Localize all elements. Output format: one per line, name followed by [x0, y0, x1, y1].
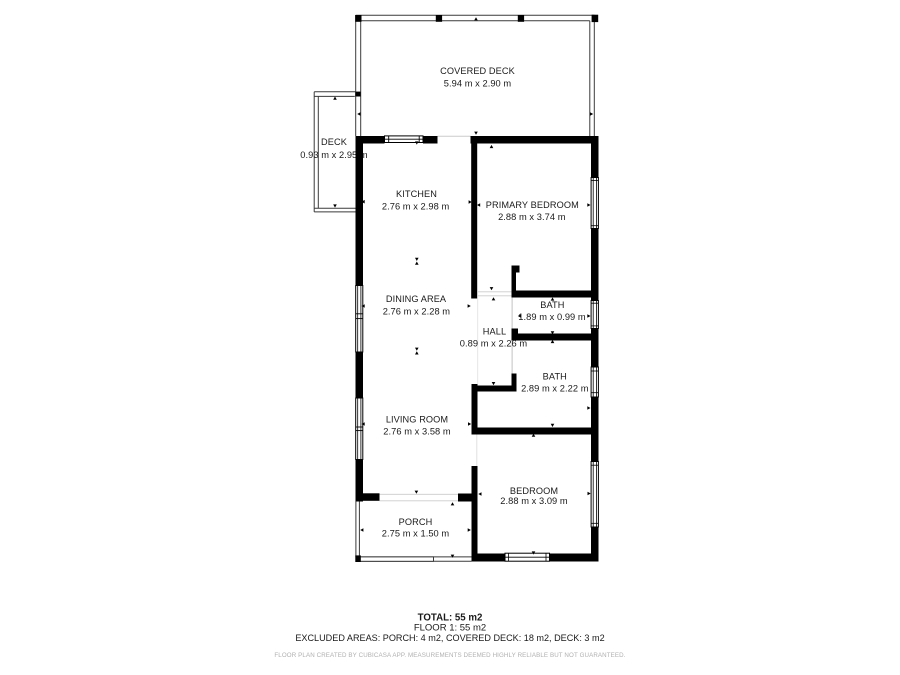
svg-text:HALL: HALL	[483, 326, 506, 336]
svg-text:2.89 m x 2.22 m: 2.89 m x 2.22 m	[521, 384, 589, 394]
svg-text:BATH: BATH	[543, 372, 567, 382]
svg-text:KITCHEN: KITCHEN	[396, 189, 437, 199]
svg-text:PRIMARY BEDROOM: PRIMARY BEDROOM	[486, 200, 579, 210]
svg-text:FLOOR PLAN CREATED BY CUBICASA: FLOOR PLAN CREATED BY CUBICASA APP. MEAS…	[274, 652, 625, 659]
svg-text:2.88 m x 3.74 m: 2.88 m x 3.74 m	[498, 212, 566, 222]
svg-text:COVERED DECK: COVERED DECK	[440, 66, 515, 76]
svg-text:PORCH: PORCH	[399, 517, 433, 527]
svg-text:BEDROOM: BEDROOM	[510, 486, 558, 496]
svg-text:DINING AREA: DINING AREA	[386, 294, 447, 304]
svg-text:1.89 m x 0.99 m: 1.89 m x 0.99 m	[518, 312, 586, 322]
svg-text:BATH: BATH	[540, 300, 564, 310]
svg-text:EXCLUDED AREAS: PORCH: 4 m2, C: EXCLUDED AREAS: PORCH: 4 m2, COVERED DEC…	[295, 633, 604, 643]
svg-text:2.76 m x 3.58 m: 2.76 m x 3.58 m	[383, 427, 451, 437]
svg-text:DECK: DECK	[321, 137, 348, 147]
svg-text:5.94 m x 2.90 m: 5.94 m x 2.90 m	[444, 78, 512, 88]
svg-text:2.88 m x 3.09 m: 2.88 m x 3.09 m	[500, 496, 568, 506]
svg-text:LIVING ROOM: LIVING ROOM	[386, 415, 448, 425]
svg-text:2.76 m x 2.98 m: 2.76 m x 2.98 m	[382, 202, 450, 212]
svg-text:2.75 m x 1.50 m: 2.75 m x 1.50 m	[382, 529, 450, 539]
svg-text:FLOOR 1: 55 m2: FLOOR 1: 55 m2	[414, 623, 486, 634]
svg-text:0.89 m x 2.26 m: 0.89 m x 2.26 m	[460, 338, 528, 348]
svg-text:2.76 m x 2.28 m: 2.76 m x 2.28 m	[383, 306, 451, 316]
